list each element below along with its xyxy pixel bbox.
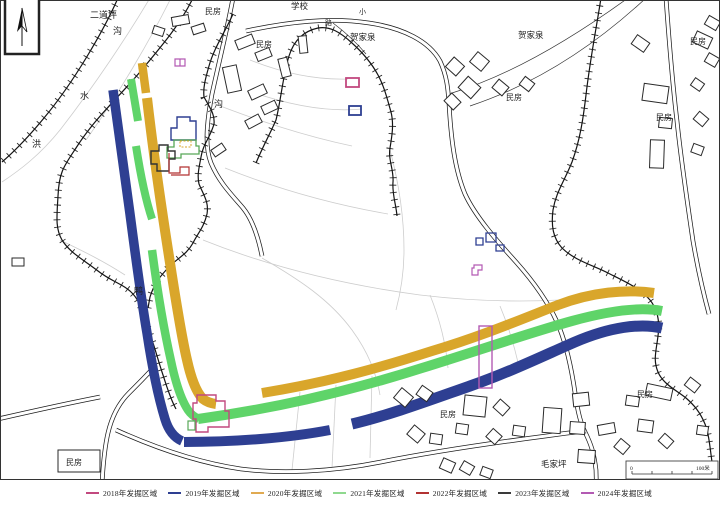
legend-swatch — [251, 492, 264, 494]
map-label: 鸭 — [134, 285, 143, 296]
house — [704, 15, 720, 30]
house — [693, 111, 709, 126]
house — [696, 425, 708, 435]
house — [519, 76, 535, 91]
map-label: 贺家泉 — [350, 32, 376, 42]
house — [637, 419, 654, 433]
legend-item-2019: 2019年发掘区域 — [168, 488, 239, 499]
house — [578, 449, 596, 463]
excavation-2024-pair — [175, 59, 185, 66]
excavation-2021-area — [167, 140, 199, 158]
map-label: 民房 — [440, 409, 456, 419]
road-line — [0, 397, 100, 419]
scale-zero-label: 0 — [630, 466, 633, 472]
road-line — [101, 365, 156, 480]
legend-swatch — [416, 492, 429, 494]
house — [512, 425, 525, 437]
house — [597, 423, 615, 436]
legend-label: 2023年发掘区域 — [515, 488, 569, 499]
house — [572, 392, 589, 407]
stream-line — [256, 28, 397, 216]
map-label: 民房 — [506, 92, 522, 102]
map-label: 洪 — [32, 138, 41, 149]
house — [455, 423, 468, 435]
excavation-2020-dashed-rect — [180, 141, 191, 147]
legend-item-2022: 2022年发掘区域 — [416, 488, 487, 499]
house — [152, 25, 165, 36]
house — [570, 421, 586, 434]
house — [248, 84, 268, 100]
house — [642, 83, 669, 103]
map-label: 民房 — [205, 6, 221, 16]
excavation-stripe-2020 — [142, 63, 146, 93]
map-label: 民房 — [637, 389, 653, 399]
house — [704, 53, 719, 68]
map-canvas: 二道坪民房学校小路民房贺家泉贺家泉民房民房民房沟沟水洪鸭民房民房民房毛家坪010… — [0, 0, 720, 480]
legend-items: 2018年发掘区域2019年发掘区域2020年发掘区域2021年发掘区域2022… — [86, 480, 652, 506]
scale-max-label: 100米 — [696, 464, 710, 472]
map-label: 民房 — [256, 39, 272, 49]
map-label: 学校 — [291, 1, 309, 11]
house — [658, 433, 674, 448]
house — [493, 399, 510, 416]
excavation-2024-small — [472, 265, 482, 275]
house — [191, 23, 206, 35]
house — [439, 458, 455, 473]
map-label: 贺家泉 — [518, 30, 544, 40]
excavation-stripe-2021 — [131, 79, 138, 121]
house — [278, 57, 291, 78]
house — [458, 76, 481, 99]
map-label: 毛家坪 — [541, 459, 567, 469]
field-boundary-line — [86, 0, 170, 140]
map-label: 小 — [359, 7, 366, 16]
house — [222, 65, 241, 93]
map-label: 民房 — [66, 457, 82, 467]
map-label: 民房 — [690, 36, 706, 46]
map-label: 水 — [80, 90, 89, 101]
house — [480, 466, 493, 478]
road-line — [116, 430, 586, 472]
house — [12, 258, 24, 266]
house — [691, 143, 704, 155]
map-frame — [1, 1, 720, 480]
field-boundary-line — [250, 60, 348, 79]
excavation-2021-small-rect — [188, 421, 195, 430]
house — [298, 36, 308, 54]
legend-label: 2022年发掘区域 — [433, 488, 487, 499]
legend-item-2020: 2020年发掘区域 — [251, 488, 322, 499]
map-label: 沟 — [113, 25, 122, 36]
house — [171, 15, 189, 27]
excavation-2022-area — [169, 153, 189, 175]
house — [255, 48, 272, 62]
legend-swatch — [498, 492, 511, 494]
excavation-2019-rect — [349, 106, 361, 115]
legend-label: 2021年发掘区域 — [350, 488, 404, 499]
legend-label: 2020年发掘区域 — [268, 488, 322, 499]
legend-item-2021: 2021年发掘区域 — [333, 488, 404, 499]
excavation-site-map: 二道坪民房学校小路民房贺家泉贺家泉民房民房民房沟沟水洪鸭民房民房民房毛家坪010… — [0, 0, 720, 480]
house — [211, 143, 226, 157]
legend-swatch — [168, 492, 181, 494]
excavation-stripe-2020 — [262, 291, 654, 393]
legend-swatch — [333, 492, 346, 494]
house — [407, 425, 425, 443]
map-label: 二道坪 — [90, 9, 117, 20]
house — [690, 78, 704, 92]
house — [463, 395, 487, 417]
legend-label: 2024年发掘区域 — [598, 488, 652, 499]
house — [235, 34, 255, 50]
legend-label: 2019年发掘区域 — [185, 488, 239, 499]
house — [429, 433, 442, 445]
house — [650, 140, 665, 168]
map-legend: 2018年发掘区域2019年发掘区域2020年发掘区域2021年发掘区域2022… — [0, 480, 720, 506]
house — [684, 377, 700, 393]
legend-swatch — [581, 492, 594, 494]
legend-item-2023: 2023年发掘区域 — [498, 488, 569, 499]
house — [459, 461, 474, 476]
field-boundary-line — [225, 168, 388, 214]
map-label: 沟 — [214, 98, 223, 109]
house — [261, 100, 278, 114]
slope-hachure-ticks — [256, 28, 397, 216]
field-boundary-line — [60, 240, 125, 275]
legend-label: 2018年发掘区域 — [103, 488, 157, 499]
house — [445, 57, 464, 76]
legend-item-2024: 2024年发掘区域 — [581, 488, 652, 499]
legend-item-2018: 2018年发掘区域 — [86, 488, 157, 499]
house — [614, 438, 630, 454]
house — [542, 407, 562, 433]
map-label: 民房 — [656, 112, 672, 122]
house — [631, 35, 650, 53]
map-label: 路 — [325, 18, 332, 27]
house — [470, 52, 490, 72]
legend-swatch — [86, 492, 99, 494]
excavation-2019-area — [171, 117, 196, 140]
site-map-page: 二道坪民房学校小路民房贺家泉贺家泉民房民房民房沟沟水洪鸭民房民房民房毛家坪010… — [0, 0, 720, 506]
